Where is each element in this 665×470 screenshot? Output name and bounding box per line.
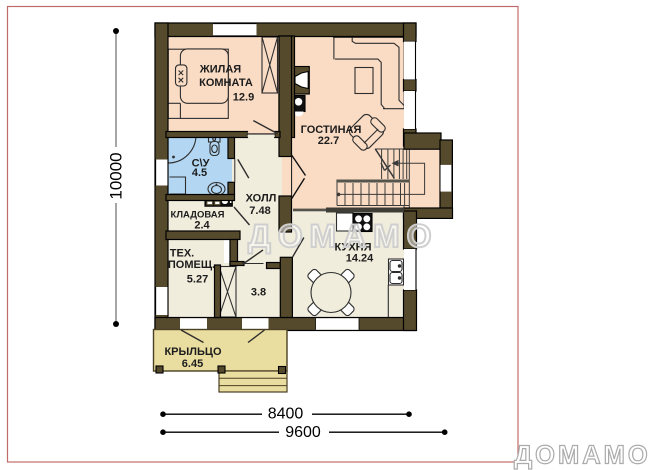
svg-text:7.48: 7.48: [249, 205, 270, 217]
svg-text:8400: 8400: [268, 406, 304, 423]
svg-text:ДОМАМО: ДОМАМО: [514, 442, 651, 470]
svg-text:ХОЛЛ: ХОЛЛ: [246, 193, 277, 205]
svg-text:12.9: 12.9: [233, 92, 254, 104]
svg-text:14.24: 14.24: [346, 253, 374, 265]
svg-text:КОМНАТА: КОМНАТА: [199, 77, 253, 89]
svg-text:ТЕХ.: ТЕХ.: [170, 248, 194, 260]
svg-text:4.5: 4.5: [192, 167, 207, 179]
svg-text:6.45: 6.45: [182, 358, 203, 370]
svg-text:10000: 10000: [107, 152, 126, 199]
svg-text:5.27: 5.27: [187, 274, 208, 286]
svg-text:9600: 9600: [285, 424, 321, 441]
svg-text:ДОМАМО: ДОМАМО: [248, 218, 438, 254]
svg-text:3.8: 3.8: [251, 287, 266, 299]
svg-text:2.4: 2.4: [194, 220, 210, 232]
svg-text:22.7: 22.7: [318, 135, 339, 147]
svg-text:КРЫЛЬЦО: КРЫЛЬЦО: [164, 346, 221, 358]
svg-text:ПОМЕЩ.: ПОМЕЩ.: [168, 259, 215, 271]
svg-text:ЖИЛАЯ: ЖИЛАЯ: [199, 64, 242, 76]
